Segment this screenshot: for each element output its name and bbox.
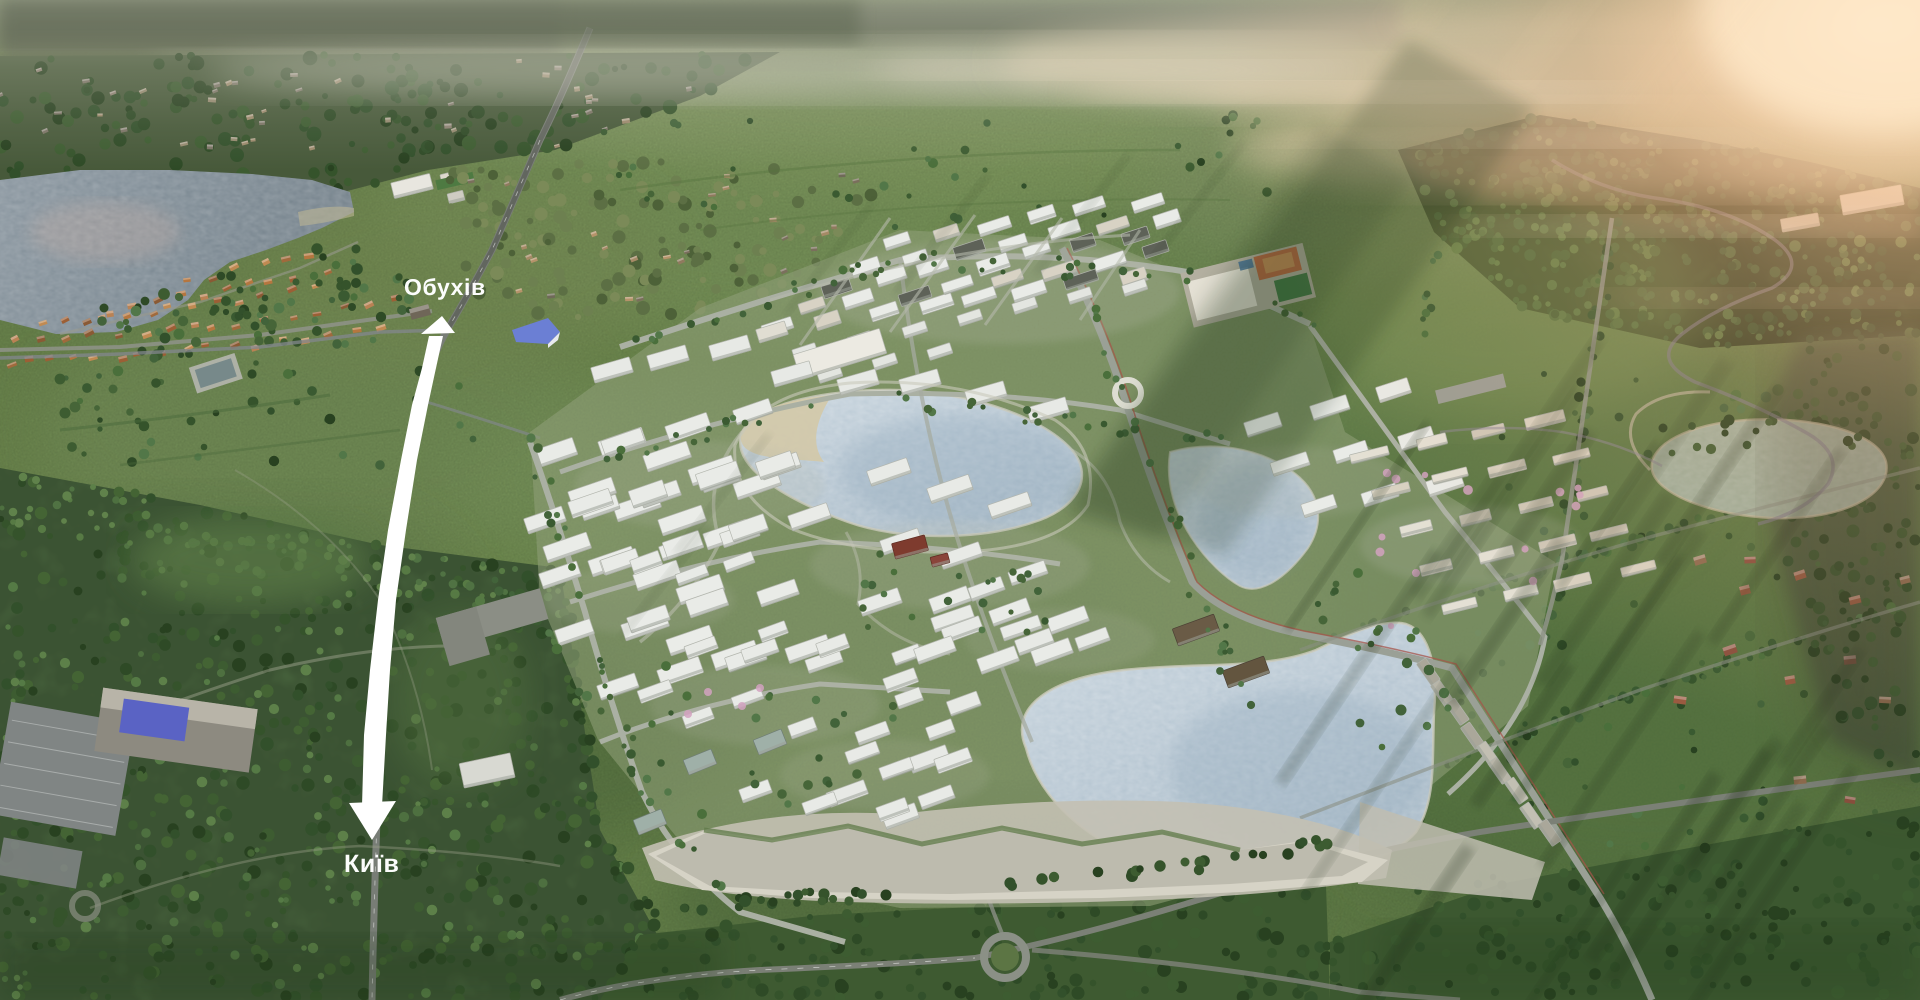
svg-text:Обухів: Обухів bbox=[404, 274, 486, 300]
svg-text:Київ: Київ bbox=[344, 850, 399, 878]
